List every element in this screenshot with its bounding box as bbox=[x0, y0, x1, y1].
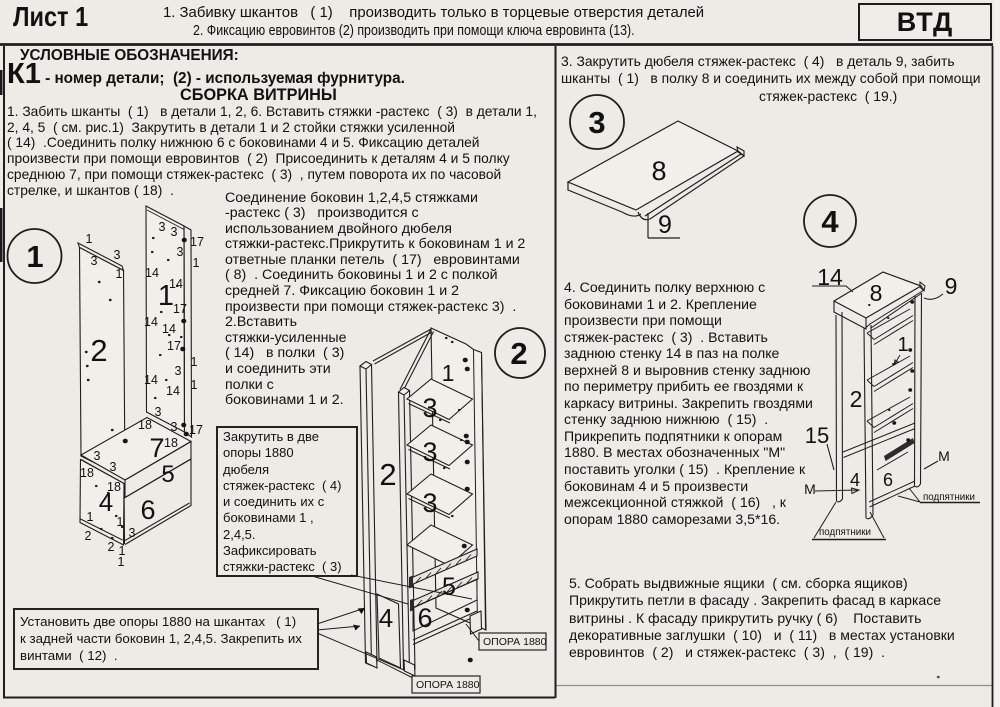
svg-text:4: 4 bbox=[821, 204, 839, 239]
svg-text:14: 14 bbox=[817, 264, 843, 290]
svg-text:9: 9 bbox=[658, 211, 672, 239]
svg-text:3: 3 bbox=[159, 220, 166, 234]
svg-text:М: М bbox=[804, 481, 816, 497]
svg-text:17: 17 bbox=[189, 423, 203, 437]
svg-text:17: 17 bbox=[167, 339, 181, 353]
svg-text:5: 5 bbox=[442, 573, 456, 601]
svg-text:1: 1 bbox=[442, 360, 455, 386]
svg-text:2: 2 bbox=[85, 529, 92, 543]
svg-text:3: 3 bbox=[422, 393, 437, 423]
svg-text:7: 7 bbox=[149, 433, 164, 463]
svg-text:3: 3 bbox=[129, 526, 136, 540]
svg-text:14: 14 bbox=[166, 384, 180, 398]
svg-text:1: 1 bbox=[26, 239, 43, 274]
svg-text:14: 14 bbox=[162, 322, 176, 336]
svg-text:1: 1 bbox=[897, 334, 908, 356]
svg-text:6: 6 bbox=[883, 470, 893, 490]
svg-text:3: 3 bbox=[155, 405, 162, 419]
svg-text:3: 3 bbox=[171, 225, 178, 239]
svg-text:9: 9 bbox=[945, 273, 958, 299]
svg-text:4: 4 bbox=[850, 470, 860, 490]
svg-text:2: 2 bbox=[108, 540, 115, 554]
svg-text:2: 2 bbox=[90, 333, 107, 368]
svg-text:18: 18 bbox=[164, 436, 178, 450]
svg-text:3: 3 bbox=[94, 449, 101, 463]
svg-text:3: 3 bbox=[114, 248, 121, 262]
svg-text:3: 3 bbox=[175, 364, 182, 378]
svg-text:14: 14 bbox=[144, 373, 158, 387]
svg-text:6: 6 bbox=[417, 603, 432, 633]
svg-text:17: 17 bbox=[173, 302, 187, 316]
svg-text:2: 2 bbox=[379, 457, 396, 492]
svg-text:1: 1 bbox=[116, 267, 123, 281]
svg-text:1: 1 bbox=[87, 510, 94, 524]
svg-text:3: 3 bbox=[110, 460, 117, 474]
svg-text:14: 14 bbox=[144, 315, 158, 329]
svg-text:4: 4 bbox=[379, 603, 393, 633]
svg-text:15: 15 bbox=[805, 423, 829, 448]
svg-text:1: 1 bbox=[191, 355, 198, 369]
svg-text:3: 3 bbox=[177, 245, 184, 259]
svg-text:3: 3 bbox=[588, 105, 605, 140]
svg-text:14: 14 bbox=[145, 266, 159, 280]
svg-text:1: 1 bbox=[191, 378, 198, 392]
svg-text:3: 3 bbox=[171, 420, 178, 434]
svg-text:3: 3 bbox=[91, 254, 98, 268]
svg-text:18: 18 bbox=[107, 480, 121, 494]
svg-text:17: 17 bbox=[190, 235, 204, 249]
svg-text:18: 18 bbox=[80, 466, 94, 480]
svg-text:18: 18 bbox=[138, 418, 152, 432]
svg-text:1: 1 bbox=[118, 555, 125, 569]
svg-text:5: 5 bbox=[161, 461, 174, 488]
svg-text:3: 3 bbox=[422, 488, 437, 518]
svg-text:1: 1 bbox=[193, 256, 200, 270]
svg-text:3: 3 bbox=[422, 437, 437, 467]
svg-text:2: 2 bbox=[510, 336, 527, 371]
svg-text:1: 1 bbox=[86, 232, 93, 246]
svg-text:8: 8 bbox=[651, 156, 666, 186]
svg-text:2: 2 bbox=[850, 386, 863, 412]
svg-text:1: 1 bbox=[117, 515, 124, 529]
svg-text:14: 14 bbox=[169, 277, 183, 291]
svg-text:8: 8 bbox=[870, 280, 883, 306]
svg-text:6: 6 bbox=[140, 495, 155, 525]
svg-text:М: М bbox=[938, 448, 950, 464]
